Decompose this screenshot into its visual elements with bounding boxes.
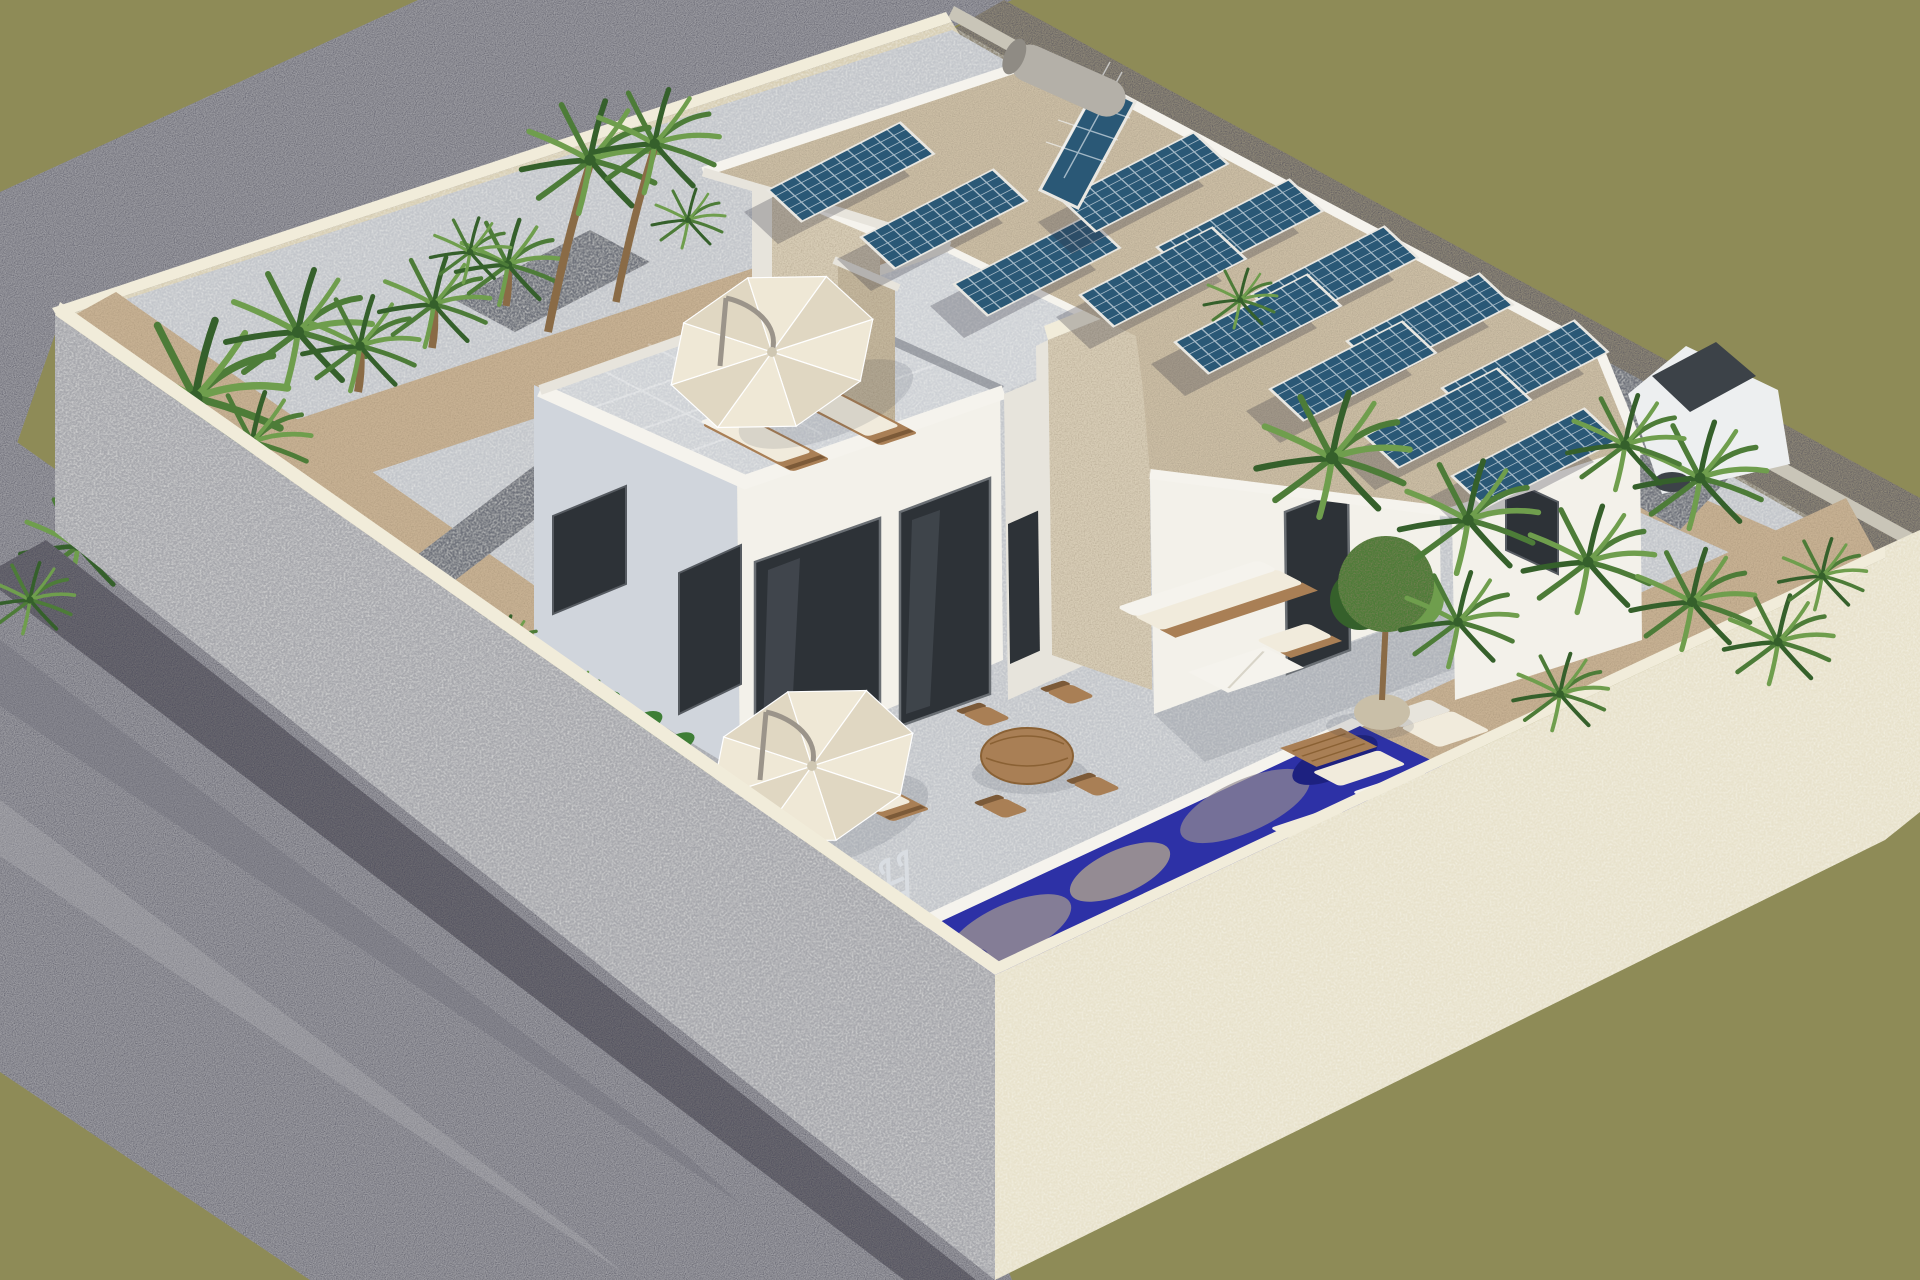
villa-render: Bird's-eye isometric rendering of a wall… [0, 0, 1920, 1280]
right-wall-return-face [1885, 530, 1920, 840]
door-window [679, 545, 741, 714]
tree-canopy [1338, 536, 1434, 632]
feature-chimney-stone-face [1048, 300, 1152, 690]
render-stage: Bird's-eye isometric rendering of a wall… [0, 0, 1920, 1280]
